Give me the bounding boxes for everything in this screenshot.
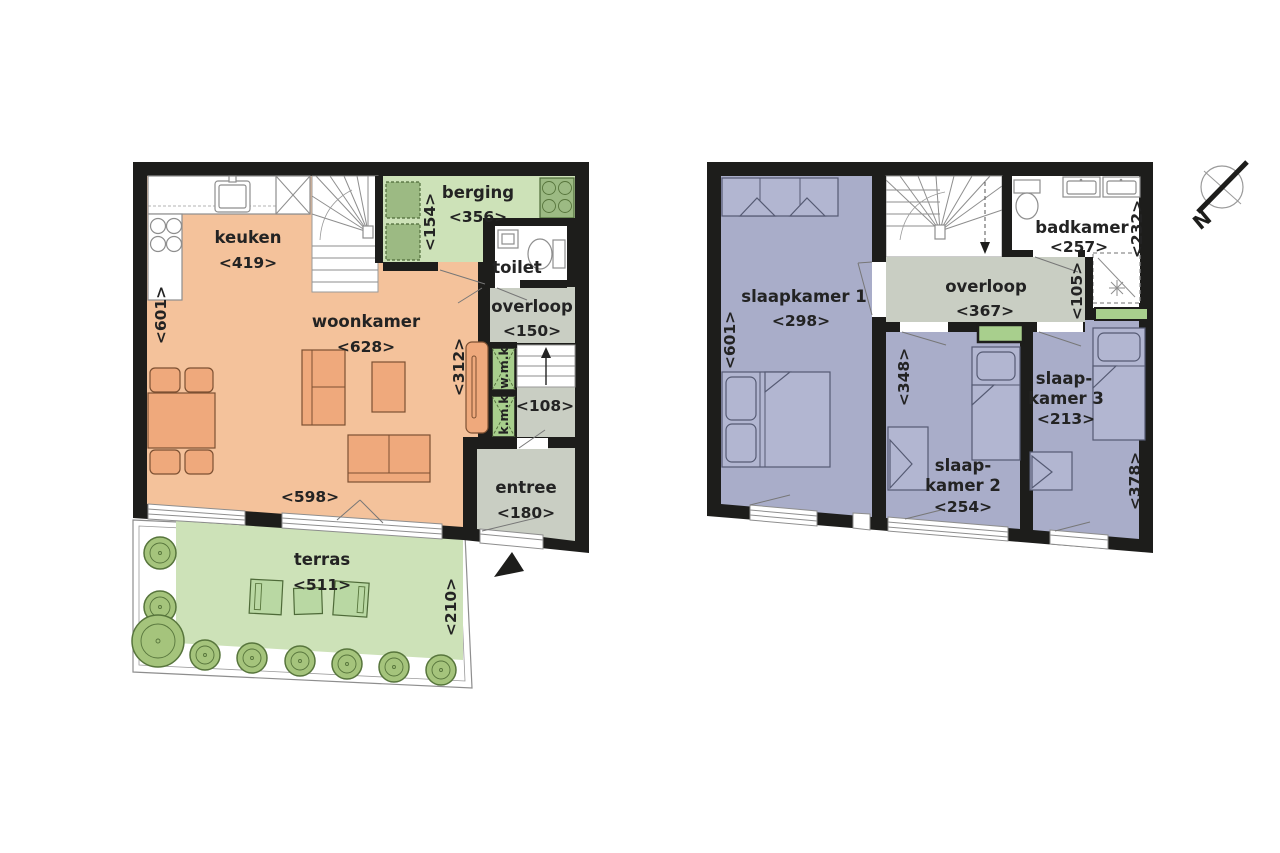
compass: N — [1188, 162, 1247, 235]
slaapkamer1-door-gap — [872, 262, 886, 317]
floor2-stairs — [886, 176, 1002, 257]
label-overloop1: overloop — [491, 297, 573, 316]
planter-strip-middle — [978, 325, 1023, 342]
wardrobe-sk1 — [722, 178, 838, 216]
planter-strip-right — [1095, 308, 1148, 320]
label-overloop2: overloop — [945, 277, 1027, 296]
dim-slaapkamer2: <254> — [934, 498, 992, 516]
dim-badkamer-side: <232> — [1128, 200, 1146, 258]
wardrobe-sk3 — [1030, 452, 1072, 490]
dim-slaapkamer3: <213> — [1037, 410, 1095, 428]
toilet-icon — [1014, 180, 1040, 219]
entrance-arrow — [494, 552, 524, 577]
dim-woonkamer: <628> — [337, 338, 395, 356]
dim-keuken: <419> — [219, 254, 277, 272]
label-slaapkamer2-line2: kamer 2 — [925, 476, 1001, 495]
label-kmk: k.m.k — [496, 395, 511, 435]
sofa-1 — [302, 350, 345, 425]
label-badkamer: badkamer — [1035, 218, 1129, 237]
floorplan-page: keuken <419> woonkamer <628> <601> bergi… — [0, 0, 1280, 853]
kitchen-sink-icon — [215, 176, 250, 212]
compass-needle — [1198, 162, 1247, 212]
dim-floor2-left: <601> — [721, 311, 739, 369]
coffee-table — [372, 362, 405, 412]
sofa-2 — [348, 435, 430, 482]
floor1-plan: keuken <419> woonkamer <628> <601> bergi… — [132, 162, 589, 688]
label-entree: entree — [495, 478, 556, 497]
dim-berging: <356> — [449, 208, 507, 226]
sink-icon — [1063, 177, 1100, 197]
bed-sk2 — [972, 347, 1020, 460]
dim-terras: <511> — [293, 576, 351, 594]
label-slaapkamer3-line2: kamer 3 — [1028, 389, 1104, 408]
dim-slaapkamer2-side: <348> — [895, 348, 913, 406]
dim-terras-side: <210> — [442, 578, 460, 636]
label-wmk: w.m.k — [496, 347, 511, 389]
label-keuken: keuken — [215, 228, 282, 247]
slaapkamer3-door-gap — [1037, 322, 1083, 332]
double-bed — [722, 372, 830, 467]
dim-trap: <108> — [516, 397, 574, 415]
dim-overloop1: <150> — [503, 322, 561, 340]
heater-icon — [540, 178, 574, 218]
label-woonkamer: woonkamer — [312, 312, 421, 331]
label-toilet: toilet — [492, 258, 542, 277]
bed-sk3 — [1093, 328, 1145, 440]
floor2-plan: slaapkamer 1 <298> <601> overloop <367> … — [707, 162, 1153, 553]
dim-slaapkamer1: <298> — [772, 312, 830, 330]
slaapkamer2-door-gap — [900, 322, 948, 332]
dim-overloop-side: <105> — [1068, 262, 1086, 320]
dim-overloop2: <367> — [956, 302, 1014, 320]
wardrobe-sk2 — [888, 427, 928, 490]
shower-icon — [1093, 253, 1140, 303]
dim-wand: <312> — [450, 338, 468, 396]
label-berging: berging — [442, 183, 514, 202]
floor1-stairs-down — [517, 345, 575, 437]
dim-floor1-left: <601> — [152, 286, 170, 344]
dim-entree: <180> — [497, 504, 555, 522]
sink-icon-2 — [1103, 177, 1140, 197]
dim-berging-side: <154> — [421, 193, 439, 251]
label-terras: terras — [294, 550, 350, 569]
toilet-door-gap — [495, 280, 520, 288]
entree-door-gap — [517, 438, 548, 449]
compass-north-label: N — [1188, 205, 1216, 234]
label-slaapkamer3-line1: slaap- — [1036, 369, 1092, 388]
dim-badkamer: <257> — [1050, 238, 1108, 256]
dim-floor1-bottom: <598> — [281, 488, 339, 506]
dim-slaapkamer3-side: <378> — [1126, 452, 1144, 510]
kitchen-appliance-icon — [276, 176, 310, 214]
tv-cabinet — [466, 342, 488, 433]
floorplan-drawing: keuken <419> woonkamer <628> <601> bergi… — [0, 0, 1280, 853]
label-slaapkamer1: slaapkamer 1 — [741, 287, 866, 306]
label-slaapkamer2-line1: slaap- — [935, 456, 991, 475]
floor1-stairs — [312, 176, 378, 292]
terras-garden — [132, 520, 472, 688]
